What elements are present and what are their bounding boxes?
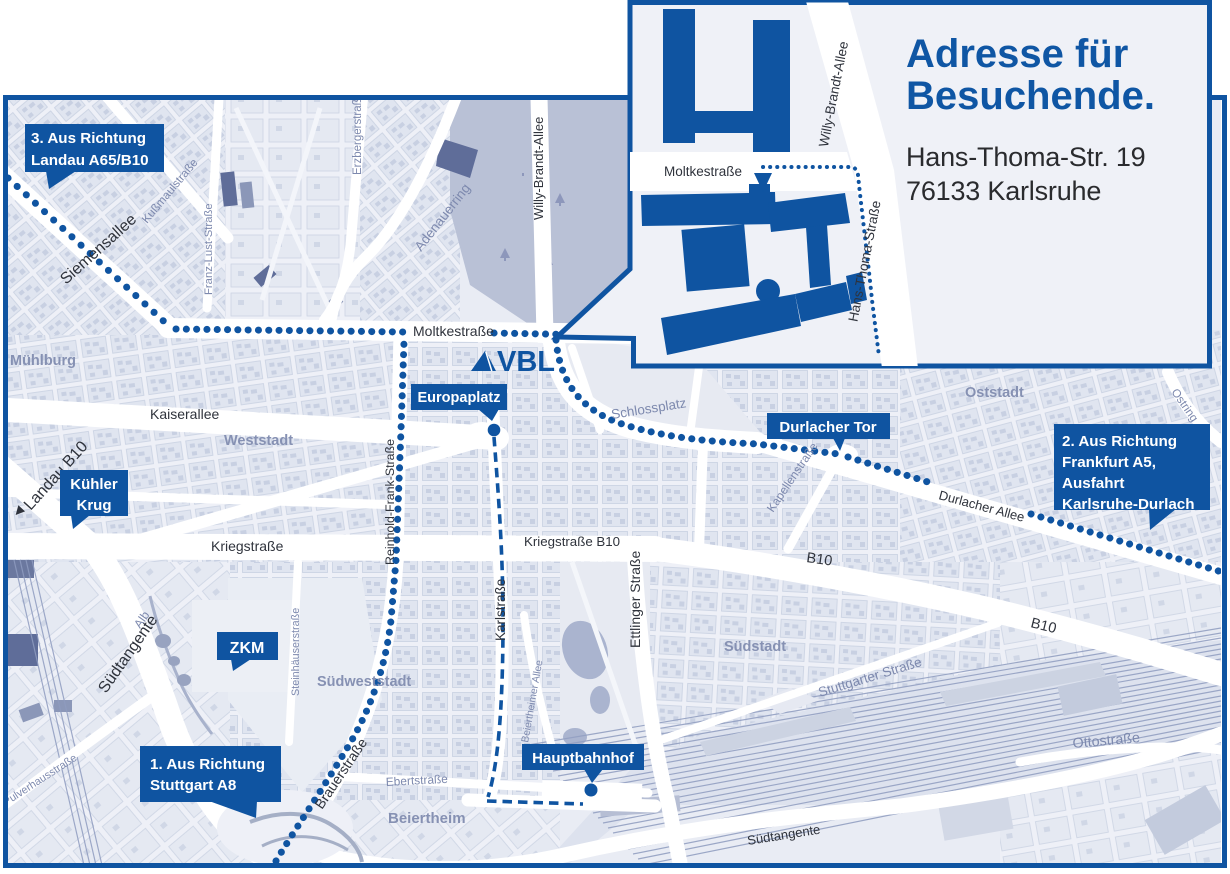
svg-text:3. Aus Richtung: 3. Aus Richtung: [31, 130, 146, 147]
svg-text:Südstadt: Südstadt: [724, 639, 786, 655]
svg-text:1. Aus Richtung: 1. Aus Richtung: [150, 756, 265, 773]
svg-text:Ettlinger Straße: Ettlinger Straße: [627, 551, 643, 648]
svg-text:Steinhäuserstraße: Steinhäuserstraße: [290, 608, 302, 696]
svg-text:Reinhold-Frank-Straße: Reinhold-Frank-Straße: [383, 439, 397, 565]
svg-text:2. Aus Richtung: 2. Aus Richtung: [1062, 433, 1177, 450]
svg-text:Franz-Lust-Straße: Franz-Lust-Straße: [203, 203, 215, 295]
svg-text:Erzbergerstraße: Erzbergerstraße: [352, 92, 364, 175]
svg-text:Durlacher Tor: Durlacher Tor: [779, 419, 876, 436]
svg-text:76133 Karlsruhe: 76133 Karlsruhe: [906, 176, 1101, 206]
svg-text:Moltkestraße: Moltkestraße: [413, 323, 494, 339]
svg-text:Frankfurt A5,: Frankfurt A5,: [1062, 454, 1156, 471]
svg-text:Willy-Brandt-Allee: Willy-Brandt-Allee: [531, 117, 546, 220]
svg-text:Stuttgart A8: Stuttgart A8: [150, 777, 236, 794]
svg-text:Moltkestraße: Moltkestraße: [664, 164, 742, 179]
svg-text:Beiertheim: Beiertheim: [388, 810, 466, 827]
svg-text:Karlsruhe-Durlach: Karlsruhe-Durlach: [1062, 496, 1195, 513]
svg-text:Hans-Thoma-Str. 19: Hans-Thoma-Str. 19: [906, 142, 1146, 172]
svg-text:Kriegstraße B10: Kriegstraße B10: [524, 534, 620, 549]
svg-text:ZKM: ZKM: [230, 640, 265, 657]
svg-text:Oststadt: Oststadt: [965, 385, 1024, 401]
svg-text:Südweststadt: Südweststadt: [317, 674, 411, 690]
svg-text:VBL: VBL: [497, 346, 555, 378]
svg-text:Europaplatz: Europaplatz: [418, 390, 501, 406]
svg-text:Besuchende.: Besuchende.: [906, 74, 1155, 118]
svg-text:Ausfahrt: Ausfahrt: [1062, 475, 1124, 492]
svg-text:Weststadt: Weststadt: [224, 433, 293, 449]
svg-text:Landau A65/B10: Landau A65/B10: [31, 152, 149, 169]
svg-text:Kaiserallee: Kaiserallee: [150, 406, 219, 422]
svg-text:Karlstraße: Karlstraße: [493, 579, 508, 641]
svg-text:Adresse für: Adresse für: [906, 32, 1128, 76]
svg-text:Hauptbahnhof: Hauptbahnhof: [532, 750, 635, 767]
svg-text:Mühlburg: Mühlburg: [10, 353, 76, 369]
svg-text:Kriegstraße: Kriegstraße: [211, 538, 284, 554]
svg-text:Krug: Krug: [77, 497, 112, 514]
svg-text:Kühler: Kühler: [70, 476, 118, 493]
